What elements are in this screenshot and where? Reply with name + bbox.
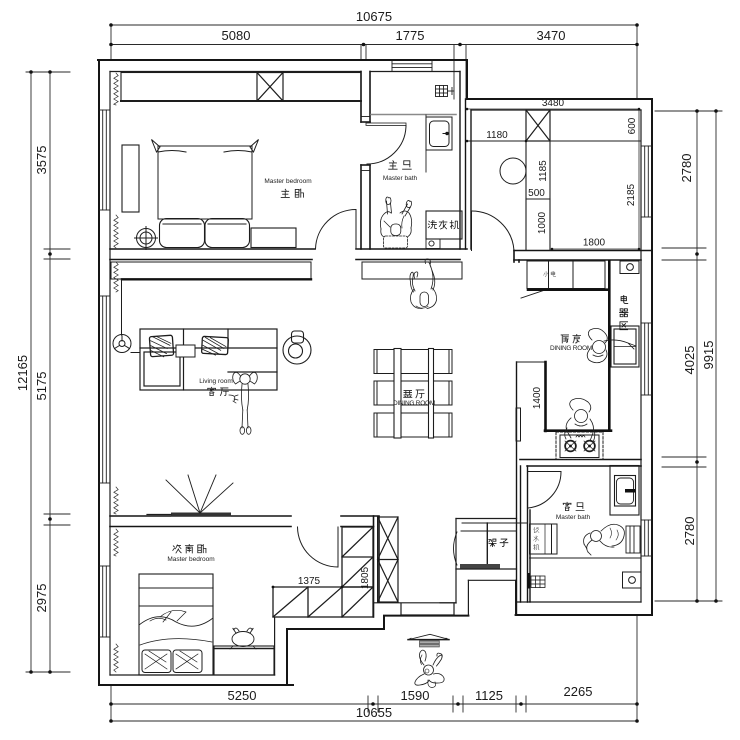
svg-text:Living room: Living room <box>199 378 233 385</box>
svg-text:500: 500 <box>528 188 545 199</box>
svg-text:3575: 3575 <box>34 146 49 175</box>
svg-text:1125: 1125 <box>475 688 503 703</box>
svg-text:10655: 10655 <box>356 705 392 720</box>
svg-text:1590: 1590 <box>401 688 430 703</box>
svg-text:1000: 1000 <box>537 211 548 234</box>
svg-text:1400: 1400 <box>532 386 543 409</box>
svg-text:1185: 1185 <box>538 160 549 182</box>
svg-text:2975: 2975 <box>34 584 49 613</box>
svg-text:2780: 2780 <box>679 154 694 183</box>
svg-text:1800: 1800 <box>583 238 606 249</box>
svg-text:1805: 1805 <box>360 566 371 589</box>
svg-text:5250: 5250 <box>228 688 257 703</box>
svg-text:3470: 3470 <box>537 28 566 43</box>
svg-text:DINING ROOM: DINING ROOM <box>393 400 435 407</box>
svg-text:4025: 4025 <box>682 346 697 375</box>
svg-text:Master bath: Master bath <box>556 514 591 521</box>
svg-text:1375: 1375 <box>298 576 321 587</box>
svg-text:DINING ROOM: DINING ROOM <box>550 345 592 352</box>
svg-text:2185: 2185 <box>626 183 637 206</box>
svg-text:12165: 12165 <box>15 355 30 391</box>
svg-text:10675: 10675 <box>356 9 392 24</box>
svg-text:1775: 1775 <box>396 28 425 43</box>
svg-text:Master bedroom: Master bedroom <box>264 178 311 185</box>
svg-text:Master bedroom: Master bedroom <box>167 556 214 563</box>
svg-text:5175: 5175 <box>34 372 49 401</box>
svg-text:Master bath: Master bath <box>383 175 418 182</box>
svg-text:600: 600 <box>627 117 638 134</box>
svg-text:1180: 1180 <box>486 130 508 141</box>
svg-text:2780: 2780 <box>682 517 697 546</box>
svg-text:2265: 2265 <box>564 684 593 699</box>
svg-text:3480: 3480 <box>542 98 565 109</box>
svg-text:5080: 5080 <box>222 28 251 43</box>
svg-text:9915: 9915 <box>701 341 716 370</box>
